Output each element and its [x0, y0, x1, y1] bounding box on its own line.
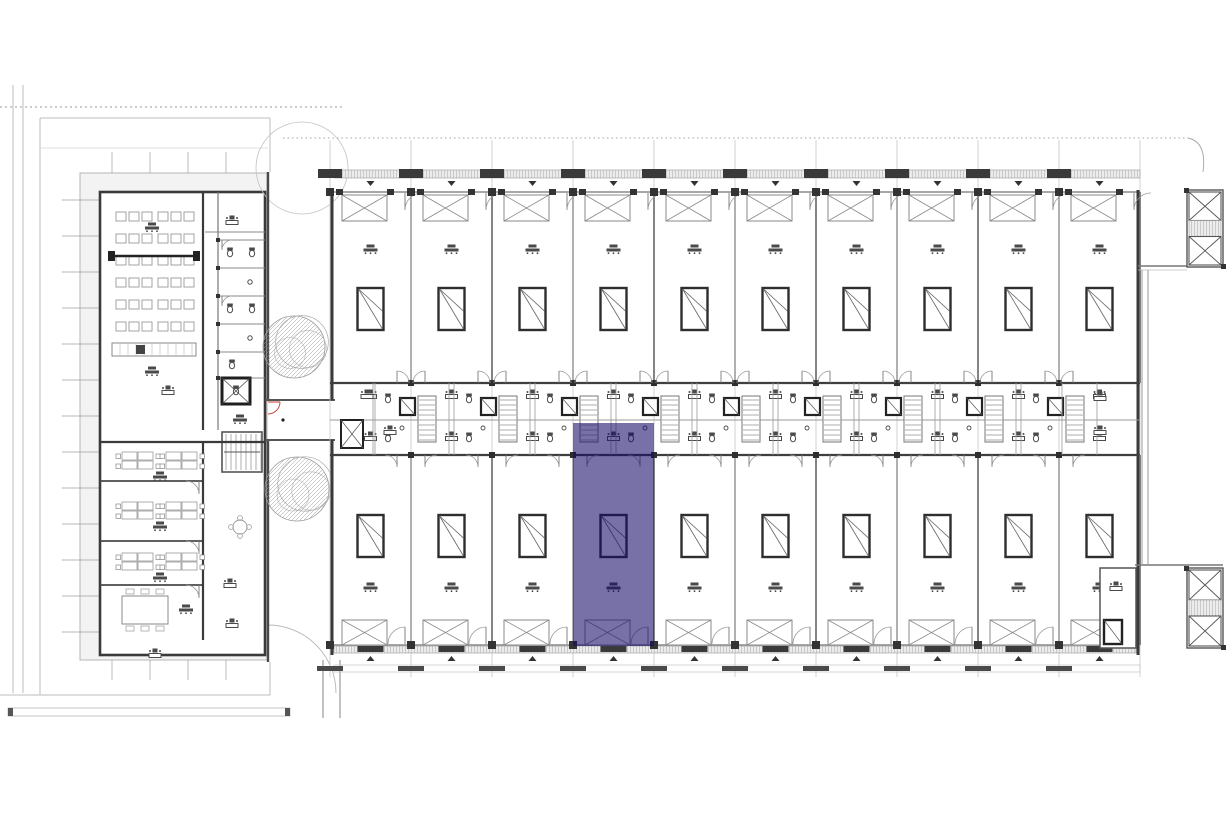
- desk-icon: [932, 390, 944, 399]
- crossed-box: [1189, 570, 1221, 600]
- unit-region-bottom[interactable]: [492, 455, 573, 645]
- desk-icon: [1013, 390, 1025, 399]
- toilet-icon: [385, 394, 391, 403]
- desk-icon: [851, 432, 863, 441]
- toilet-icon: [709, 433, 715, 442]
- toilet-icon: [466, 433, 472, 442]
- toilet-icon: [1033, 394, 1039, 403]
- unit-region-top[interactable]: [897, 192, 978, 383]
- toilet-icon: [952, 394, 958, 403]
- elevator: [222, 378, 250, 404]
- toilet-icon: [790, 394, 796, 403]
- unit-region-top[interactable]: [735, 192, 816, 383]
- desk-icon: [1094, 426, 1106, 435]
- right-building: [317, 140, 1151, 677]
- unit-region-top[interactable]: [573, 192, 654, 383]
- unit-region-top[interactable]: [816, 192, 897, 383]
- toilet-icon: [709, 394, 715, 403]
- red-door: [268, 402, 280, 414]
- crossed-box: [1189, 616, 1221, 646]
- stairwell: [222, 432, 262, 472]
- toilet-icon: [952, 433, 958, 442]
- crossed-box: [1189, 192, 1221, 221]
- desk-icon: [689, 390, 701, 399]
- desk-icon: [689, 432, 701, 441]
- unit-region-bottom[interactable]: [330, 455, 411, 645]
- toilet-icon: [790, 433, 796, 442]
- desk-icon: [770, 432, 782, 441]
- desk-icon: [384, 426, 396, 435]
- unit-region-bottom[interactable]: [735, 455, 816, 645]
- unit-region-top[interactable]: [492, 192, 573, 383]
- desk-icon: [932, 432, 944, 441]
- toilet-icon: [871, 433, 877, 442]
- highlighted-unit[interactable]: [573, 423, 654, 646]
- desk-icon: [851, 390, 863, 399]
- toilet-icon: [1033, 433, 1039, 442]
- unit-region-bottom[interactable]: [654, 455, 735, 645]
- corner-room: [1100, 568, 1136, 648]
- toilet-icon: [547, 433, 553, 442]
- desk-icon: [1013, 432, 1025, 441]
- crossed-box: [1189, 237, 1221, 266]
- toilet-icon: [547, 394, 553, 403]
- unit-region-top[interactable]: [978, 192, 1059, 383]
- exterior-stair-towers: [1135, 188, 1226, 650]
- toilet-icon: [466, 394, 472, 403]
- toilet-icon: [871, 394, 877, 403]
- tree: [263, 316, 328, 378]
- desk-icon: [527, 432, 539, 441]
- unit-region-top[interactable]: [654, 192, 735, 383]
- tree: [265, 457, 332, 521]
- left-building: [62, 152, 267, 680]
- unit-region-bottom[interactable]: [816, 455, 897, 645]
- stair-tower: [1184, 188, 1226, 269]
- desk-icon: [446, 390, 458, 399]
- desk-icon: [446, 432, 458, 441]
- unit-region-top[interactable]: [330, 192, 411, 383]
- floor-plan-canvas: [0, 0, 1230, 820]
- highlighted-unit-overlay[interactable]: [573, 423, 654, 646]
- stair-tower: [1184, 566, 1226, 650]
- desk-icon: [608, 390, 620, 399]
- unit-region-top[interactable]: [1059, 192, 1140, 383]
- desk-icon: [527, 390, 539, 399]
- unit-region-top[interactable]: [411, 192, 492, 383]
- unit-region-bottom[interactable]: [897, 455, 978, 645]
- toilet-icon: [628, 394, 634, 403]
- unit-region-bottom[interactable]: [978, 455, 1059, 645]
- floor-plan-page: [0, 0, 1230, 820]
- unit-region-bottom[interactable]: [411, 455, 492, 645]
- desk-icon: [770, 390, 782, 399]
